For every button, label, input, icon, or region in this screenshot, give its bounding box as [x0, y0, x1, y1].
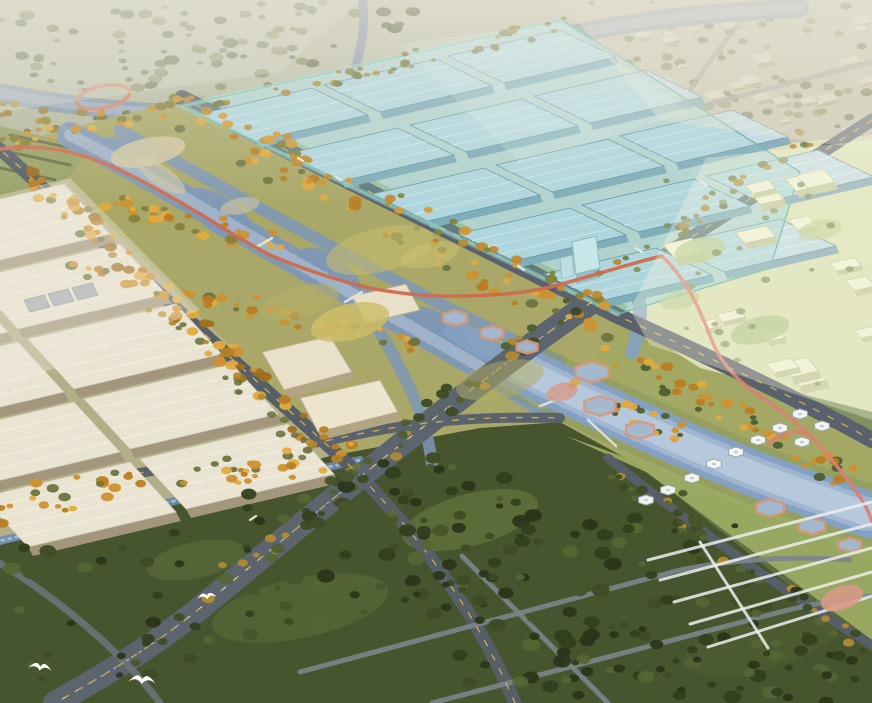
park-trees-a-tree-111 — [384, 516, 393, 523]
park-trees-a-tree-90 — [389, 543, 399, 550]
trees-r3-tree-7 — [204, 351, 212, 357]
park-trees-a-tree-19 — [389, 488, 400, 496]
park-trees-c-tree-40 — [650, 640, 663, 650]
trees-r2-lower-tree-8 — [527, 324, 538, 332]
park-trees-a-tree-12 — [44, 652, 52, 658]
trees-r2-lower-tree-33 — [265, 534, 276, 542]
trees-r1-north-tree-38 — [449, 219, 457, 225]
park-trees-b-tree-44 — [498, 588, 513, 599]
park-trees-a-tree-100 — [452, 523, 466, 533]
park-trees-b-tree-88 — [489, 574, 498, 581]
park-trees-a-tree-71 — [361, 610, 368, 615]
trees-se-corridor-tree-30 — [848, 465, 858, 472]
trees-r3-west-tree-11 — [298, 455, 306, 461]
park-trees-a-tree-55 — [338, 480, 355, 493]
park-trees-c-tree-41 — [638, 626, 646, 632]
park-trees-b-tree-24 — [426, 608, 442, 620]
park-trees-b-tree-10 — [408, 551, 425, 563]
park-trees-a-tree-54 — [67, 620, 76, 626]
trees-r2-lower-tree-31 — [563, 298, 570, 303]
trees-corridor-r4-tree-33 — [194, 467, 201, 472]
park-trees-b-tree-16 — [594, 547, 611, 559]
trees-river-north-bank-tree-19 — [671, 428, 679, 434]
trees-corridor-r4-tree-30 — [348, 442, 354, 446]
trees-r2-lower-tree-22 — [421, 399, 433, 407]
park-trees-a-tree-58 — [340, 472, 354, 482]
hex-ponds-8 — [839, 538, 862, 552]
trees-r3-tree-10 — [331, 455, 343, 463]
park-trees-a-tree-23 — [117, 653, 126, 660]
trees-riverside-road-tree-31 — [664, 500, 671, 505]
trees-r2-lower-tree-17 — [570, 307, 581, 315]
trees-corridor-r4-tree-48 — [286, 462, 297, 469]
trees-corridor-r4-tree-24 — [252, 474, 258, 478]
trees-riverside-road-tree-28 — [631, 495, 639, 501]
trees-se-corridor-tree-36 — [814, 473, 826, 481]
park-trees-b-tree-90 — [613, 618, 620, 623]
park-trees-c-tree-39 — [693, 657, 702, 663]
trees-corridor-r4-tree-31 — [101, 492, 114, 501]
trees-r2-lower-tree-4 — [253, 553, 260, 558]
hex-ponds-0 — [443, 310, 467, 325]
hex-ponds-3 — [576, 362, 609, 383]
park-trees-a-tree-86 — [420, 518, 428, 523]
hex-ponds-4 — [584, 396, 615, 416]
trees-corridor-a-tree-2 — [175, 223, 186, 230]
trees-r3-west-tree-17 — [233, 372, 242, 378]
trees-corridor-r4-tree-29 — [47, 484, 59, 493]
park-trees-b-tree-81 — [684, 554, 696, 563]
park-trees-a-tree-48 — [485, 533, 495, 540]
trees-r2-lower-tree-45 — [397, 443, 403, 447]
trees-se-corridor-tree-12 — [752, 428, 759, 433]
park-trees-a-tree-6 — [3, 562, 20, 575]
park-trees-b-tree-89 — [802, 634, 818, 646]
park-trees-a-tree-113 — [461, 545, 471, 552]
park-trees-a-tree-107 — [462, 481, 476, 491]
trees-corridor-b-tree-11 — [379, 340, 387, 346]
park-trees-b-tree-41 — [612, 537, 627, 548]
park-trees-a-tree-87 — [338, 501, 353, 512]
trees-r3-west-tree-28 — [276, 431, 286, 438]
park-trees-c-tree-34 — [559, 636, 577, 649]
trees-r1-south-tree-50 — [526, 299, 539, 308]
trees-r2-lower-tree-30 — [501, 342, 512, 350]
trees-se-corridor-tree-37 — [695, 407, 702, 412]
park-trees-b-tree-47 — [472, 595, 487, 606]
park-trees-b-tree-85 — [601, 532, 608, 537]
park-trees-a-tree-61 — [279, 601, 292, 611]
pavilions-hub-7 — [690, 477, 694, 480]
park-trees-a-tree-45 — [325, 476, 338, 485]
trees-r2-lower-tree-11 — [238, 559, 248, 566]
trees-se-corridor-tree-41 — [661, 362, 674, 371]
park-trees-b-tree-42 — [799, 593, 809, 600]
park-trees-b-tree-83 — [474, 617, 484, 624]
park-trees-a-tree-102 — [116, 672, 124, 677]
trees-se-corridor-tree-5 — [750, 415, 757, 420]
trees-corridor-a-tree-5 — [128, 215, 140, 223]
park-trees-a-tree-27 — [96, 557, 107, 565]
park-trees-a-tree-35 — [131, 659, 141, 666]
park-trees-b-tree-61 — [587, 596, 602, 607]
trees-corridor-b-tree-36 — [403, 336, 410, 341]
trees-se-corridor-tree-4 — [802, 463, 810, 468]
park-trees-b-tree-59 — [442, 559, 457, 570]
park-trees-b-tree-40 — [462, 677, 477, 687]
hex-ponds-1 — [481, 326, 504, 340]
trees-r2-lower-tree-23 — [441, 384, 453, 392]
park-trees-b-tree-31 — [570, 531, 580, 538]
park-trees-c-tree-44 — [677, 687, 686, 693]
park-trees-b-tree-79 — [678, 532, 691, 542]
park-trees-c-tree-15 — [561, 676, 571, 683]
park-trees-b-tree-25 — [632, 538, 649, 550]
park-trees-a-tree-91 — [426, 464, 435, 470]
trees-corridor-a-tree-12 — [235, 229, 241, 233]
trees-r1-north-tree-36 — [459, 227, 471, 236]
trees-se-corridor-tree-42 — [744, 407, 755, 415]
park-trees-b-tree-99 — [622, 524, 634, 533]
park-trees-a-tree-32 — [522, 565, 533, 573]
park-trees-a-tree-101 — [254, 517, 265, 525]
trees-r1-north-tree-7 — [549, 271, 555, 275]
trees-r3-tree-6 — [213, 341, 226, 350]
pavilions-hub-0 — [798, 413, 802, 416]
park-trees-c-tree-2 — [763, 651, 771, 656]
park-trees-b-tree-4 — [687, 646, 698, 654]
park-trees-a-tree-52 — [277, 514, 289, 523]
trees-corridor-r4-tree-42 — [303, 447, 313, 454]
trees-corridor-r4-tree-35 — [247, 461, 255, 467]
trees-se-corridor-tree-31 — [651, 364, 659, 369]
park-trees-b-tree-23 — [604, 558, 622, 571]
park-trees-c-tree-38 — [796, 676, 808, 685]
trees-r1-north-tree-1 — [545, 275, 557, 284]
park-trees-b-tree-70 — [613, 664, 625, 672]
park-trees-a-tree-93 — [184, 654, 197, 664]
park-trees-b-tree-8 — [671, 528, 679, 534]
trees-river-north-bank-tree-3 — [637, 408, 645, 414]
trees-river-north-bank-tree-14 — [650, 411, 658, 417]
park-trees-b-tree-72 — [433, 571, 446, 580]
trees-r3-tree-22 — [199, 319, 211, 327]
trees-r2-lower-tree-34 — [398, 431, 408, 438]
trees-r3-tree-34 — [331, 444, 339, 449]
trees-river-north-bank-tree-20 — [661, 413, 670, 419]
trees-r2-lower-tree-43 — [271, 544, 284, 554]
park-trees-c-tree-14 — [846, 656, 858, 665]
trees-corridor-r4-tree-25 — [29, 496, 36, 501]
park-trees-b-tree-6 — [627, 513, 643, 524]
park-trees-b-tree-66 — [608, 624, 616, 630]
trees-riverside-road-tree-1 — [749, 569, 755, 574]
park-trees-c-tree-10 — [797, 689, 815, 702]
trees-se-corridor-tree-11 — [751, 420, 759, 425]
trees-se-corridor-tree-35 — [702, 394, 712, 401]
park-trees-a-tree-73 — [397, 496, 409, 504]
park-trees-a-tree-66 — [385, 467, 401, 479]
park-trees-c-tree-22 — [771, 688, 783, 696]
trees-se-corridor-tree-33 — [697, 381, 707, 388]
trees-corridor-r4-tree-44 — [39, 501, 49, 508]
pavilions-hub-4 — [800, 441, 804, 444]
park-trees-c-tree-24 — [656, 666, 665, 673]
park-trees-a-tree-20 — [350, 591, 360, 598]
trees-riverside-road-tree-29 — [850, 630, 860, 637]
park-trees-a-tree-89 — [174, 613, 185, 621]
park-trees-b-tree-30 — [488, 558, 502, 568]
trees-se-corridor-tree-9 — [708, 402, 714, 406]
trees-r2-upper-tree-13 — [613, 259, 622, 265]
trees-r3-tree-52 — [278, 395, 291, 404]
park-trees-a-tree-68 — [496, 503, 504, 508]
park-trees-b-tree-49 — [676, 520, 683, 525]
trees-corridor-r4-tree-9 — [211, 461, 219, 467]
park-trees-a-tree-53 — [496, 472, 513, 484]
trees-r2-upper-tree-24 — [644, 245, 650, 249]
park-trees-b-tree-0 — [644, 531, 653, 537]
trees-corridor-a-tree-33 — [219, 216, 228, 222]
trees-r3-west-tree-12 — [267, 411, 276, 418]
trees-r2-lower-tree-7 — [505, 351, 518, 361]
park-trees-a-tree-114 — [158, 638, 168, 645]
park-trees-a-tree-70 — [511, 499, 521, 506]
trees-r1-south-tree-28 — [442, 265, 451, 271]
park-trees-c-tree-3 — [572, 691, 584, 700]
park-trees-a-tree-110 — [405, 575, 421, 586]
park-trees-a-tree-56 — [175, 560, 185, 567]
trees-corridor-r4-tree-21 — [30, 479, 43, 488]
park-trees-b-tree-71 — [751, 610, 761, 617]
park-trees-a-tree-65 — [105, 570, 113, 576]
trees-r2-lower-tree-2 — [218, 562, 227, 568]
trees-corridor-r4-tree-14 — [319, 467, 328, 473]
trees-r3-tree-19 — [319, 434, 328, 440]
trees-corridor-a-tree-38 — [148, 215, 158, 222]
park-trees-b-tree-63 — [458, 587, 466, 593]
trees-r1-north-tree-23 — [576, 293, 584, 298]
park-trees-a-tree-43 — [38, 676, 46, 682]
trees-riverside-road-tree-4 — [608, 475, 615, 480]
trees-r3-tree-36 — [287, 426, 297, 433]
trees-r3-west-tree-9 — [291, 432, 299, 438]
park-trees-a-tree-84 — [265, 553, 277, 562]
park-trees-a-tree-38 — [243, 629, 259, 640]
park-trees-a-tree-99 — [142, 641, 150, 647]
park-trees-a-tree-50 — [78, 562, 93, 573]
trees-r1-south-tree-3 — [503, 279, 511, 284]
trees-riverside-road-tree-22 — [628, 487, 634, 492]
trees-corridor-r4-tree-40 — [180, 480, 187, 485]
park-trees-c-tree-31 — [821, 671, 832, 679]
trees-se-corridor-tree-20 — [721, 399, 734, 408]
trees-corridor-r4-tree-37 — [221, 467, 232, 475]
park-trees-c-tree-49 — [557, 648, 571, 658]
park-trees-c-tree-25 — [580, 624, 589, 631]
park-trees-b-tree-84 — [527, 615, 536, 621]
trees-r1-south-tree-24 — [511, 301, 518, 306]
trees-corridor-a-tree-27 — [267, 244, 275, 250]
trees-r2-lower-tree-44 — [282, 532, 290, 538]
park-trees-b-tree-22 — [794, 646, 808, 656]
pavilions-hub-3 — [756, 439, 760, 442]
trees-r1-north-tree-33 — [458, 240, 468, 247]
trees-r2-lower-tree-38 — [318, 511, 325, 516]
trees-river-north-bank-tree-17 — [628, 403, 638, 410]
park-trees-a-tree-79 — [448, 464, 457, 470]
trees-riverside-road-tree-33 — [619, 484, 628, 491]
park-trees-a-tree-40 — [247, 586, 260, 595]
trees-r2-lower-tree-19 — [558, 320, 565, 325]
trees-se-corridor-tree-27 — [740, 424, 749, 430]
park-trees-c-tree-46 — [571, 660, 579, 666]
trees-se-corridor-tree-1 — [715, 415, 722, 420]
trees-r2-lower-tree-13 — [516, 336, 523, 341]
trees-se-corridor-tree-34 — [672, 388, 682, 395]
park-trees-a-tree-108 — [140, 557, 154, 567]
trees-r1-north-tree-16 — [434, 230, 442, 236]
trees-se-corridor-tree-19 — [773, 442, 783, 449]
trees-corridor-a-tree-28 — [268, 230, 277, 236]
park-trees-a-tree-59 — [550, 555, 563, 564]
trees-corridor-a-tree-20 — [277, 244, 285, 250]
trees-river-north-bank-tree-18 — [670, 435, 680, 442]
park-trees-a-tree-97 — [297, 494, 311, 504]
trees-corridor-r4-tree-46 — [30, 489, 40, 496]
park-trees-c-tree-47 — [811, 670, 822, 678]
trees-r2-lower-tree-36 — [357, 475, 369, 484]
park-trees-b-tree-78 — [696, 597, 710, 607]
park-trees-b-tree-19 — [604, 520, 620, 532]
park-trees-b-tree-62 — [522, 639, 540, 652]
trees-r2-upper-tree-8 — [664, 223, 671, 228]
trees-se-corridor-tree-26 — [656, 375, 662, 379]
park-trees-b-tree-82 — [620, 622, 629, 629]
park-trees-b-tree-20 — [700, 535, 708, 541]
park-trees-b-tree-43 — [421, 541, 434, 550]
pavilions-hub-8 — [666, 489, 670, 492]
trees-corridor-r4-tree-38 — [58, 493, 70, 502]
park-trees-b-tree-14 — [582, 519, 598, 530]
park-trees-c-tree-32 — [771, 640, 782, 648]
trees-se-corridor-tree-39 — [762, 430, 772, 437]
trees-corridor-b-tree-7 — [216, 294, 227, 302]
park-trees-a-tree-77 — [433, 465, 445, 473]
trees-corridor-b-tree-40 — [246, 314, 252, 319]
trees-r1-south-tree-48 — [506, 273, 513, 278]
park-trees-a-tree-118 — [562, 546, 578, 558]
trees-se-corridor-tree-8 — [674, 379, 686, 388]
trees-corridor-b-tree-39 — [233, 307, 239, 311]
park-trees-a-tree-94 — [521, 524, 536, 535]
park-trees-a-tree-4 — [454, 511, 466, 520]
trees-r1-north-tree-14 — [511, 256, 523, 264]
trees-r3-tree-2 — [300, 413, 308, 419]
trees-r3-tree-3 — [319, 426, 329, 433]
park-trees-a-tree-109 — [169, 529, 180, 537]
park-trees-a-tree-106 — [118, 545, 128, 552]
trees-se-corridor-tree-29 — [659, 388, 671, 396]
trees-r3-west-tree-15 — [300, 440, 305, 444]
trees-se-corridor-tree-23 — [815, 456, 826, 464]
hex-ponds-2 — [517, 340, 538, 353]
park-trees-c-tree-42 — [743, 668, 755, 677]
trees-r3-west-tree-1 — [234, 380, 242, 386]
park-trees-b-tree-68 — [698, 634, 714, 645]
trees-se-corridor-tree-43 — [659, 385, 665, 389]
park-trees-c-tree-27 — [672, 658, 679, 663]
park-trees-a-tree-28 — [311, 621, 328, 633]
trees-riverside-road-tree-6 — [843, 639, 854, 647]
trees-r1-south-tree-17 — [583, 318, 595, 326]
trees-r1-south-tree-22 — [601, 345, 610, 352]
park-trees-c-tree-28 — [832, 651, 846, 661]
park-trees-b-tree-92 — [413, 592, 420, 597]
trees-se-corridor-tree-14 — [613, 363, 619, 367]
trees-r1-south-tree-47 — [601, 333, 614, 342]
trees-r2-lower-tree-42 — [390, 452, 402, 461]
trees-corridor-b-tree-44 — [202, 296, 214, 304]
pavilions-hub-5 — [734, 451, 738, 454]
trees-corridor-r4-tree-41 — [96, 481, 104, 487]
park-trees-a-tree-16 — [496, 496, 503, 501]
park-trees-b-tree-64 — [663, 672, 672, 679]
park-trees-a-tree-36 — [524, 509, 541, 522]
trees-corridor-a-tree-35 — [198, 232, 210, 240]
park-trees-a-tree-116 — [309, 517, 325, 528]
park-trees-a-tree-46 — [547, 522, 562, 533]
park-trees-c-tree-11 — [785, 665, 793, 671]
trees-riverside-road-tree-16 — [829, 630, 838, 637]
trees-r3-tree-38 — [213, 357, 227, 367]
trees-r3-west-tree-25 — [257, 394, 265, 400]
trees-riverside-road-tree-15 — [637, 486, 648, 494]
trees-r2-upper-tree-2 — [623, 256, 629, 261]
park-trees-b-tree-96 — [573, 586, 587, 596]
trees-r1-south-tree-40 — [471, 260, 478, 265]
park-trees-a-tree-49 — [146, 617, 161, 628]
park-trees-a-tree-81 — [401, 597, 410, 603]
trees-corridor-r4-tree-7 — [289, 475, 297, 480]
park-trees-a-tree-115 — [410, 600, 417, 605]
trees-r2-lower-tree-15 — [363, 458, 373, 465]
trees-riverside-road-tree-32 — [821, 615, 830, 621]
trees-r3-west-tree-8 — [179, 322, 186, 327]
park-trees-a-tree-2 — [218, 573, 234, 584]
park-trees-a-tree-30 — [245, 611, 254, 618]
park-trees-a-tree-44 — [317, 570, 335, 583]
trees-r1-south-tree-2 — [552, 308, 560, 314]
trees-r3-tree-45 — [250, 367, 257, 372]
park-trees-c-tree-16 — [637, 688, 650, 698]
park-trees-a-tree-9 — [339, 550, 351, 559]
park-trees-a-tree-33 — [426, 452, 441, 463]
park-trees-c-tree-5 — [850, 676, 859, 683]
park-trees-b-tree-32 — [748, 661, 760, 669]
trees-riverside-road-tree-25 — [803, 604, 813, 611]
park-trees-a-tree-37 — [533, 538, 543, 545]
trees-r3-west-tree-24 — [234, 389, 242, 395]
pavilions-hub-2 — [778, 427, 782, 430]
park-trees-a-tree-21 — [203, 636, 214, 644]
park-trees-b-tree-98 — [689, 515, 707, 528]
trees-corridor-r4-tree-39 — [241, 472, 248, 477]
park-trees-c-tree-45 — [581, 667, 593, 676]
park-trees-c-tree-29 — [579, 635, 595, 646]
trees-riverside-road-tree-24 — [842, 623, 849, 628]
park-trees-a-tree-31 — [185, 640, 194, 647]
